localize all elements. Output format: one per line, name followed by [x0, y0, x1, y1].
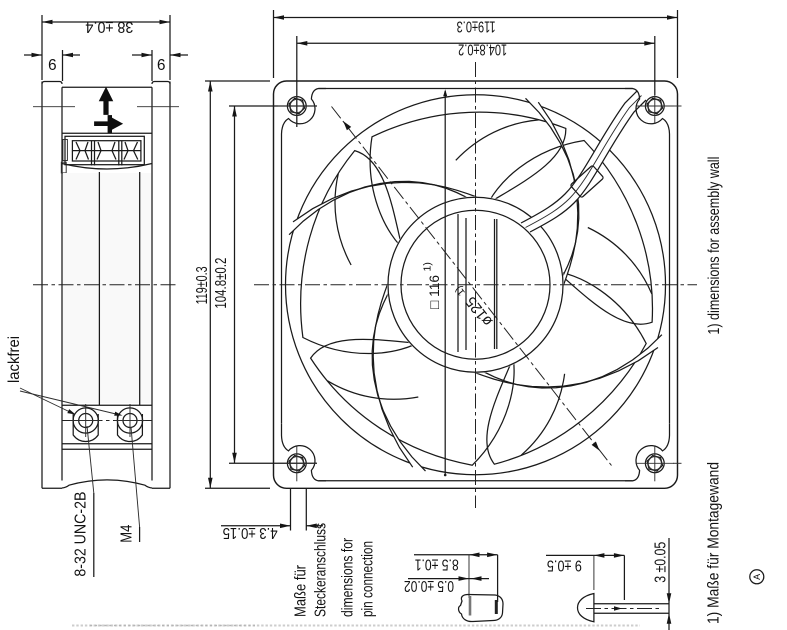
svg-text:9 ±0.5: 9 ±0.5	[547, 557, 582, 574]
svg-text:9: 9	[157, 55, 166, 72]
svg-text:8-32 UNC-2B: 8-32 UNC-2B	[73, 492, 90, 577]
svg-text:A: A	[752, 574, 762, 580]
svg-text:M4: M4	[119, 524, 136, 542]
svg-text:104.8±0.2: 104.8±0.2	[213, 258, 230, 309]
svg-text:3 ±0.05: 3 ±0.05	[653, 542, 670, 583]
svg-text:119±0.3: 119±0.3	[457, 18, 496, 35]
svg-text:8.5 ±0.1: 8.5 ±0.1	[415, 556, 459, 573]
svg-text:1): 1)	[422, 262, 434, 271]
svg-text:38 ±0.4: 38 ±0.4	[85, 18, 133, 35]
svg-text:4.3 ±0.15: 4.3 ±0.15	[223, 524, 278, 541]
svg-text:9: 9	[48, 55, 57, 72]
svg-text:Maße für: Maße für	[293, 565, 310, 617]
svg-text:0.5 ±0.02: 0.5 ±0.02	[404, 577, 454, 594]
svg-text:Steckeranschluss: Steckeranschluss	[313, 523, 330, 617]
svg-text:1) Maße für Montagewand: 1) Maße für Montagewand	[706, 462, 723, 624]
svg-text:□ 116: □ 116	[426, 275, 442, 309]
svg-text:dimensions for: dimensions for	[340, 538, 357, 617]
svg-text:104.8±0.2: 104.8±0.2	[458, 41, 507, 58]
svg-text:1) dimensions for assembly wal: 1) dimensions for assembly wall	[706, 157, 723, 335]
svg-text:119±0.3: 119±0.3	[194, 266, 211, 304]
svg-text:pin connection: pin connection	[360, 541, 377, 617]
svg-text:lackfrei: lackfrei	[6, 336, 23, 383]
